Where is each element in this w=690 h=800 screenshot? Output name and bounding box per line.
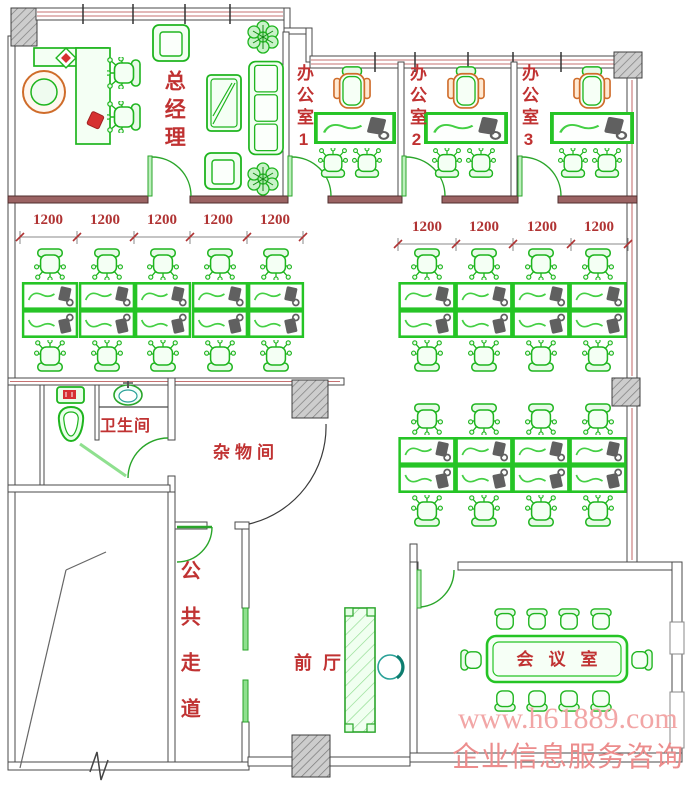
conf-chair-icon [461, 650, 481, 670]
workstations-right-2 [400, 404, 626, 526]
room-label-corridor: 公共走道 [177, 560, 198, 744]
task-chair-icon [469, 249, 500, 281]
conf-window-a [670, 622, 684, 654]
workstation-desk-icon [23, 311, 77, 336]
task-chair-icon [261, 339, 292, 371]
task-chair-icon [92, 339, 123, 371]
office-desk-icon [316, 113, 394, 142]
workstation-desk-icon [457, 283, 512, 308]
task-chair-icon [412, 494, 443, 526]
room-label-office3: 办公室3 [519, 64, 537, 154]
watermark-url: www.h61889.com [458, 702, 678, 736]
task-chair-icon [92, 249, 123, 281]
plant-icon [248, 163, 278, 195]
room-label-bathroom: 卫生间 [100, 419, 151, 436]
wall-bath-stall [40, 385, 44, 485]
task-chair-icon [205, 339, 236, 371]
office-desk-icon [552, 113, 632, 142]
window-band-top-left [36, 4, 284, 24]
coffee-table-icon [207, 75, 241, 131]
workstation-desk-icon [514, 438, 569, 463]
workstation-desk-icon [136, 311, 190, 336]
room-label-meeting: 会议室 [487, 651, 627, 669]
lobby-fixtures [345, 608, 403, 732]
door-general-manager [148, 156, 191, 196]
gm-exec-chair [23, 71, 65, 113]
dimension-label: 1200 [23, 212, 73, 229]
guest-chair-icon [559, 147, 588, 177]
break-line-mark [90, 752, 108, 780]
workstation-desk-icon [457, 311, 512, 336]
task-chair-icon [412, 404, 443, 436]
workstation-desk-icon [571, 466, 626, 491]
gm-room-furniture [23, 21, 283, 195]
workstation-desk-icon [514, 283, 569, 308]
column-lobby [292, 735, 330, 777]
wall-conf-top-b [458, 562, 682, 570]
workstation-desk-icon [193, 311, 247, 336]
workstation-desk-icon [193, 283, 247, 308]
workstations-right-1 [400, 249, 626, 371]
wall-top-rooms-bottom [8, 196, 637, 203]
office1-furniture [316, 67, 394, 177]
guest-chair-icon [467, 147, 496, 177]
dimension-label: 1200 [193, 212, 243, 229]
task-chair-icon [35, 339, 66, 371]
lobby-door-leaf-upper [243, 608, 248, 650]
guest-chair-icon [433, 147, 462, 177]
task-chair-icon [526, 249, 557, 281]
guest-chair-icon [106, 101, 140, 134]
task-chair-icon [261, 249, 292, 281]
task-chair-icon [469, 404, 500, 436]
task-chair-icon [526, 404, 557, 436]
dimension-label: 1200 [459, 219, 509, 236]
workstation-desk-icon [400, 311, 455, 336]
workstation-desk-icon [23, 283, 77, 308]
wall-office2-office3 [511, 62, 517, 196]
task-chair-icon [205, 249, 236, 281]
wall-conf-stub [410, 544, 417, 562]
workstation-desk-icon [80, 311, 134, 336]
room-label-lobby: 前厅 [294, 654, 352, 673]
dimension-label: 1200 [250, 212, 300, 229]
guest-chair-icon [319, 147, 348, 177]
task-chair-icon [412, 249, 443, 281]
sofa-icon [249, 62, 283, 155]
task-chair-icon [526, 339, 557, 371]
exec-chair-icon [448, 67, 484, 108]
wall-corridor-right-a [242, 522, 249, 608]
column-right-mid [612, 378, 640, 406]
task-chair-icon [148, 249, 179, 281]
workstation-desk-icon [136, 283, 190, 308]
workstation-desk-icon [571, 438, 626, 463]
conf-chair-icon [527, 609, 547, 629]
workstation-desk-icon [457, 466, 512, 491]
room-label-office2: 办公室2 [407, 64, 425, 154]
task-chair-icon [35, 249, 66, 281]
workstation-desk-icon [80, 283, 134, 308]
conf-chair-icon [559, 609, 579, 629]
workstations-left [23, 249, 303, 371]
dimension-label: 1200 [137, 212, 187, 229]
workstation-desk-icon [514, 311, 569, 336]
exec-chair-icon [574, 67, 610, 108]
workstation-desk-icon [249, 283, 303, 308]
guest-chair-icon [106, 57, 140, 90]
gm-desk-main [76, 48, 110, 144]
task-chair-icon [469, 339, 500, 371]
door-storage-swing [249, 424, 326, 524]
dimension-label: 1200 [402, 219, 452, 236]
armchair-icon [153, 25, 189, 61]
guest-chair-icon [353, 147, 382, 177]
task-chair-icon [583, 339, 614, 371]
workstation-desk-icon [571, 283, 626, 308]
workstation-desk-icon [249, 311, 303, 336]
stairwell-lines [20, 552, 106, 768]
workstation-desk-icon [514, 466, 569, 491]
guest-chair-icon [593, 147, 622, 177]
stool-icon [378, 655, 403, 679]
exec-chair-icon [334, 67, 370, 108]
workstation-desk-icon [400, 438, 455, 463]
office3-furniture [552, 67, 632, 177]
workstation-desk-icon [571, 311, 626, 336]
workstation-desk-icon [457, 438, 512, 463]
floor-plan: 总经理 办公室1 办公室2 办公室3 卫生间 杂物间 公共走道 前厅 会议室 1… [0, 0, 690, 800]
dimension-label: 1200 [80, 212, 130, 229]
task-chair-icon [583, 494, 614, 526]
plant-icon [248, 21, 278, 53]
cistern-marker [63, 390, 76, 399]
toilet-icon [59, 407, 83, 441]
task-chair-icon [469, 494, 500, 526]
wall-bathroom-right-a [168, 378, 175, 440]
task-chair-icon [583, 404, 614, 436]
conf-chair-icon [495, 609, 515, 629]
floorplan-drawing [0, 0, 690, 800]
task-chair-icon [526, 494, 557, 526]
door-office3 [518, 156, 561, 196]
door-corridor-entry [177, 527, 212, 562]
task-chair-icon [412, 339, 443, 371]
room-label-office1: 办公室1 [294, 64, 312, 154]
wall-left-outer [8, 36, 15, 770]
wall-bottom-left [8, 762, 249, 770]
office-desk-icon [426, 113, 506, 142]
room-label-storage: 杂物间 [213, 444, 279, 462]
conf-chair-icon [632, 650, 652, 670]
dimension-label: 1200 [517, 219, 567, 236]
workstation-desk-icon [400, 466, 455, 491]
task-chair-icon [583, 249, 614, 281]
door-meeting-room [417, 570, 454, 608]
wall-bathroom-bottom [8, 485, 170, 492]
wall-bath-partition [95, 385, 99, 440]
column-top-left [11, 8, 37, 46]
column-top-right [614, 52, 642, 78]
armchair-icon [205, 153, 241, 189]
office2-furniture [426, 67, 506, 177]
dimension-label: 1200 [574, 219, 624, 236]
wall-corridor-left [168, 492, 175, 768]
door-bathroom [80, 438, 168, 478]
column-storage [292, 380, 328, 418]
task-chair-icon [148, 339, 179, 371]
lobby-door-leaf-lower [243, 680, 248, 722]
wall-storage-bottom-b [235, 522, 249, 529]
room-label-general-manager: 总经理 [162, 70, 184, 154]
conf-chair-icon [591, 609, 611, 629]
workstation-desk-icon [400, 283, 455, 308]
watermark-caption: 企业信息服务咨询 [452, 735, 684, 775]
wall-conf-left [410, 562, 417, 760]
